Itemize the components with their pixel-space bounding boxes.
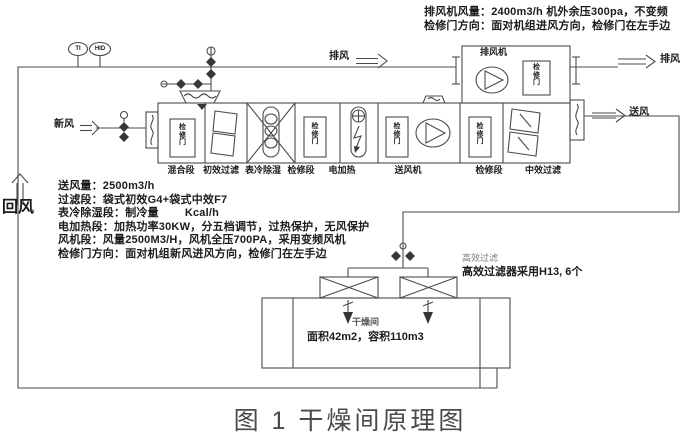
section-label-heater: 电加热 xyxy=(328,166,355,176)
primary-filter-icon xyxy=(211,111,237,156)
hepa-note-small: 高效过滤 xyxy=(462,254,498,264)
service1-access-door-label: 检修门 xyxy=(311,123,320,146)
access-door-boxes xyxy=(170,117,491,157)
supply-fan-icon xyxy=(416,119,450,147)
spec-filter-section: 过滤段：袋式初效G4+袋式中效F7 xyxy=(58,194,227,206)
mixing-access-door-label: 检修门 xyxy=(178,124,187,147)
fan-section-vent-icon xyxy=(423,96,445,103)
room-size-label: 面积42m2，容积110m3 xyxy=(307,331,424,343)
mixing-inlet-icon xyxy=(180,91,220,110)
fresh-air-label: 新风 xyxy=(54,119,74,130)
flex-connector-right xyxy=(570,100,584,140)
spec-door-direction: 检修门方向：面对机组新风进风方向，检修门在左手边 xyxy=(58,248,327,260)
temperature-sensor-label: TI xyxy=(69,46,87,53)
exhaust-top-label: 排风 xyxy=(329,51,349,62)
hepa-note-bold: 高效过滤器采用H13, 6个 xyxy=(462,266,582,278)
supply-air-label: 送风 xyxy=(629,107,649,118)
exhaust-fan-label: 排风机 xyxy=(480,48,507,58)
mixing-damper-icon xyxy=(161,79,211,89)
section-label-primary-filter: 初效过滤 xyxy=(203,166,239,176)
cooling-coil-icon xyxy=(247,103,295,163)
medium-filter-icon xyxy=(508,109,540,156)
fresh-air-damper-icon xyxy=(96,112,146,143)
room-name-label: 干燥间 xyxy=(352,318,379,328)
exhaust-right-label: 排风 xyxy=(660,54,680,65)
drying-room-schematic: 排风机风量：2400m3/h 机外余压300pa，不变频 检修门方向：面对机组进… xyxy=(0,0,700,445)
service2-access-door-label: 检修门 xyxy=(476,123,485,146)
section-label-mixing: 混合段 xyxy=(167,166,194,176)
section-label-medium-filter: 中效过滤 xyxy=(525,166,561,176)
section-label-fan: 送风机 xyxy=(394,166,421,176)
fan-access-door-label: 检修门 xyxy=(393,123,402,146)
exhaust-access-door-label: 检修门 xyxy=(532,64,541,87)
exhaust-spec-note-line1: 排风机风量：2400m3/h 机外余压300pa，不变频 xyxy=(424,6,668,18)
exhaust-right-arrow-icon xyxy=(618,55,655,68)
figure-caption: 图 1 干燥间原理图 xyxy=(0,401,700,437)
spec-heater-section: 电加热段：加热功率30KW，分五档调节，过热保护，无风保护 xyxy=(58,221,369,233)
flex-connector-left xyxy=(146,112,158,148)
spec-supply-volume: 送风量：2500m3/h xyxy=(58,180,155,192)
hepa-filter-icons xyxy=(320,277,457,298)
exhaust-spec-note-line2: 检修门方向：面对机组进风方向，检修门在左手边 xyxy=(424,20,670,32)
section-label-service1: 检修段 xyxy=(287,166,314,176)
spec-cooling-section: 表冷除湿段：制冷量 Kcal/h xyxy=(58,207,219,219)
return-air-label: 回风 xyxy=(2,199,34,217)
section-label-service2: 检修段 xyxy=(475,166,502,176)
section-label-cooling: 表冷除湿 xyxy=(245,166,281,176)
exhaust-top-arrow-icon xyxy=(356,54,387,68)
humidity-sensor-label: HID xyxy=(90,46,110,53)
spec-fan-section: 风机段：风量2500M3/H，风机全压700PA，采用变频风机 xyxy=(58,234,346,246)
electric-heater-icon xyxy=(351,107,366,157)
